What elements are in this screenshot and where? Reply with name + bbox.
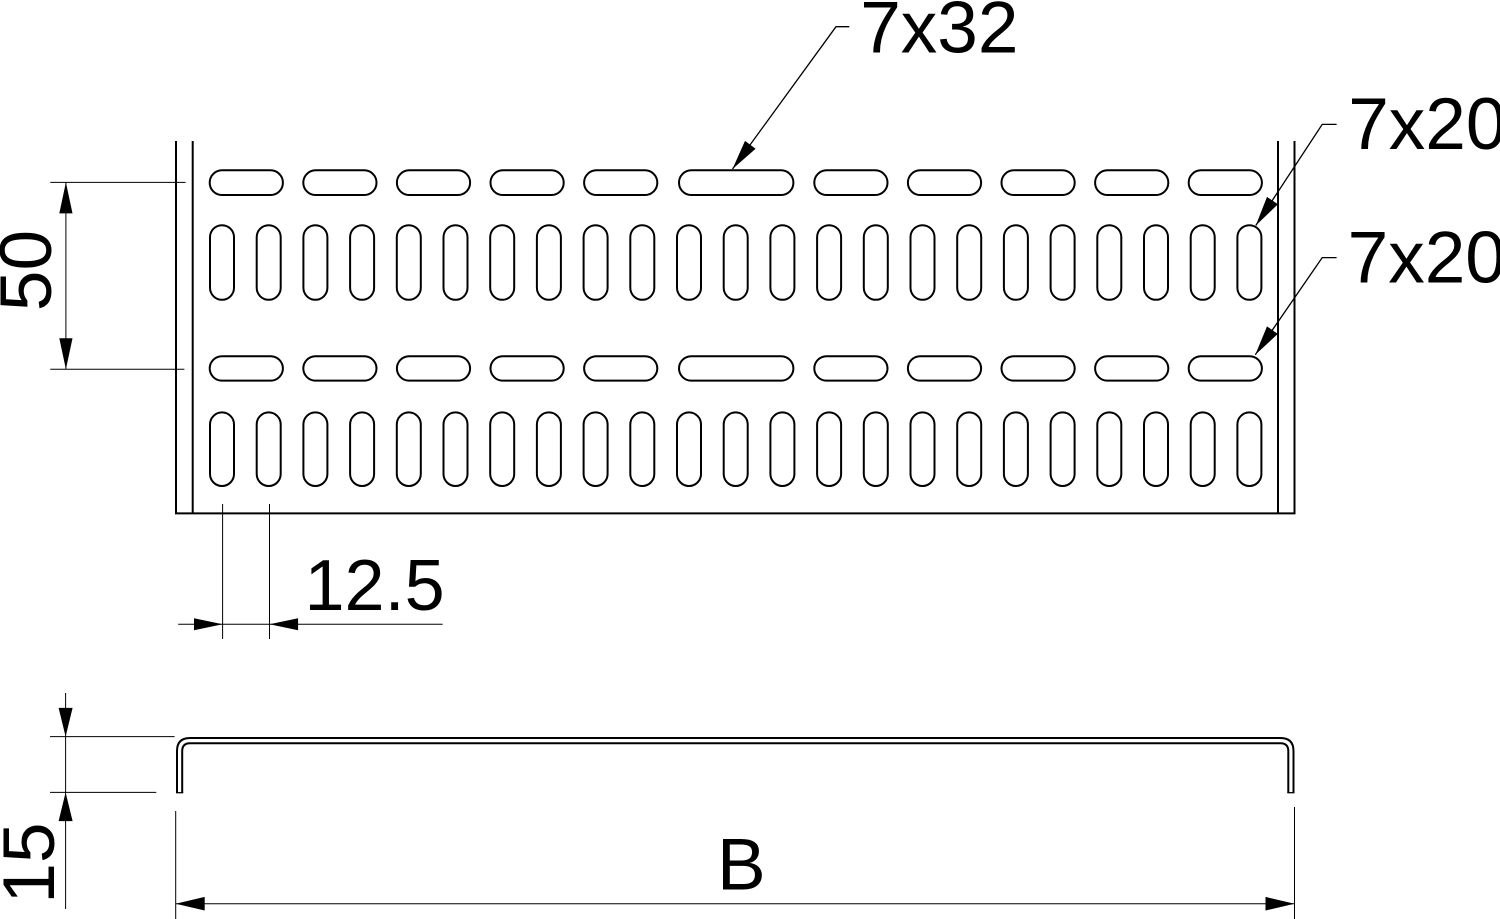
svg-text:7x20: 7x20 xyxy=(1348,218,1500,299)
svg-text:50: 50 xyxy=(0,230,67,311)
svg-text:7x32: 7x32 xyxy=(860,0,1018,69)
svg-text:15: 15 xyxy=(0,822,70,903)
svg-text:7x20: 7x20 xyxy=(1348,84,1500,165)
svg-text:12.5: 12.5 xyxy=(305,546,445,626)
svg-text:B: B xyxy=(717,825,766,906)
